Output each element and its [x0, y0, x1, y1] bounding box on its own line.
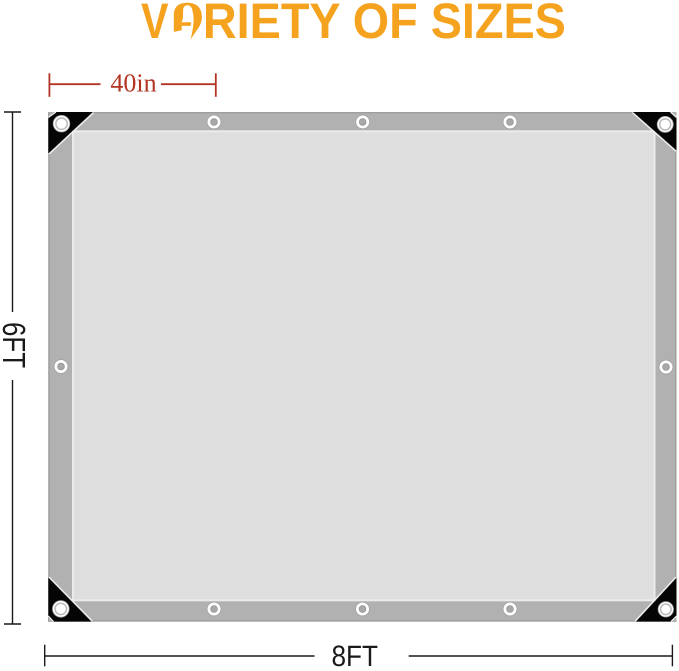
svg-text:40in: 40in [110, 68, 156, 97]
svg-text:6FT: 6FT [0, 322, 32, 368]
svg-text:RIETY OF SIZES: RIETY OF SIZES [203, 0, 566, 49]
svg-text:8FT: 8FT [332, 640, 379, 671]
svg-text:V: V [141, 0, 169, 49]
